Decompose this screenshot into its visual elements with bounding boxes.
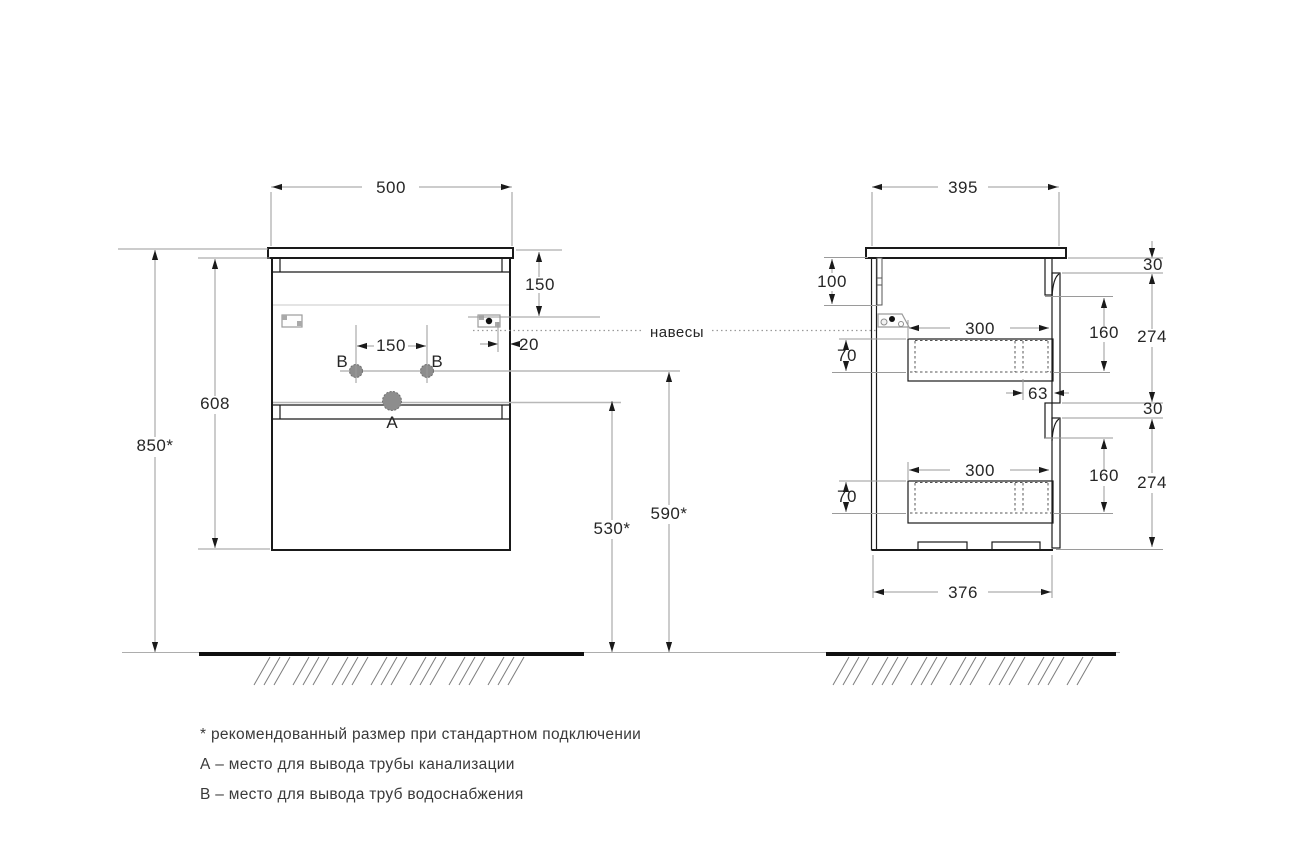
svg-text:63: 63 [1028,384,1048,403]
svg-text:850*: 850* [137,436,174,455]
dim-total-height: 850* [118,249,268,652]
svg-text:30: 30 [1143,255,1163,274]
dim-top-drawer-inner-depth: 300 [908,319,1049,339]
front-view: B B A 500 850* 608 [118,178,687,652]
dim-bottom-front-inner-height: 160 [1045,438,1119,512]
dim-top-front-inner-height: 160 [1045,297,1119,372]
label-hole-a: A [386,413,398,432]
installation-diagram: B B A 500 850* 608 [0,0,1300,866]
svg-text:376: 376 [948,583,978,602]
svg-text:160: 160 [1089,466,1119,485]
dim-front-width: 500 [271,178,512,246]
hangers-label: навесы [650,324,704,341]
dimension-arrowheads [152,184,1155,652]
svg-text:500: 500 [376,178,406,197]
footnote-hole-b: В – место для вывода труб водоснабжения [200,786,524,803]
svg-text:160: 160 [1089,323,1119,342]
front-rail-top [1045,258,1052,295]
dim-top-gap: 30 [1068,241,1163,274]
foot-notch-right [992,542,1040,550]
drain-hole [383,392,402,411]
dim-drain-outlet-height: 530* [594,401,631,652]
svg-text:30: 30 [1143,399,1163,418]
side-back-wall [872,258,877,550]
floor [122,653,1120,686]
label-hole-b-left: B [336,352,347,371]
svg-text:395: 395 [948,178,978,197]
dim-depth: 395 [872,178,1059,246]
svg-text:150: 150 [525,275,555,294]
svg-text:608: 608 [200,394,230,413]
dim-back-rail-height: 100 [817,258,879,306]
drawing-page: B B A 500 850* 608 [0,0,1300,866]
label-hole-b-right: B [431,352,442,371]
dim-water-outlet-height: 590* [651,372,688,652]
svg-text:274: 274 [1137,327,1167,346]
svg-text:274: 274 [1137,473,1167,492]
hanger-bracket-left [282,315,302,327]
dim-top-drawer-inner-height: 70 [832,339,1110,373]
svg-text:300: 300 [965,319,995,338]
footnote-hole-a: А – место для вывода трубы канализации [200,756,515,773]
foot-notch-left [918,542,967,550]
dim-bottom-drawer-inner-depth: 300 [908,461,1049,481]
svg-text:590*: 590* [651,504,688,523]
svg-text:100: 100 [817,272,847,291]
front-rail-middle [1045,403,1052,438]
floor-hatching [254,657,1093,685]
dim-hole-spacing: 150 [356,325,427,383]
top-drawer-box [908,339,1053,381]
footnotes: * рекомендованный размер при стандартном… [200,726,641,803]
hanger-screw-point [486,318,492,324]
back-rail [877,258,882,305]
dim-bottom-drawer-inner-height: 70 [832,481,1113,514]
side-view: 395 100 70 300 [817,178,1167,602]
front-countertop [268,248,513,258]
top-drawer-front [1052,273,1060,403]
svg-text:300: 300 [965,461,995,480]
dim-body-depth: 376 [873,555,1052,602]
footnote-recommended: * рекомендованный размер при стандартном… [200,726,641,743]
svg-text:20: 20 [519,335,539,354]
side-countertop [866,248,1066,258]
hanger-bracket-side [878,314,909,327]
bottom-drawer-box [908,481,1053,523]
dim-bottom-gap: 30 [1062,399,1163,418]
svg-text:150: 150 [376,336,406,355]
dim-cabinet-height: 608 [198,258,270,549]
dim-top-to-hanger: 150 [468,250,600,317]
svg-text:530*: 530* [594,519,631,538]
